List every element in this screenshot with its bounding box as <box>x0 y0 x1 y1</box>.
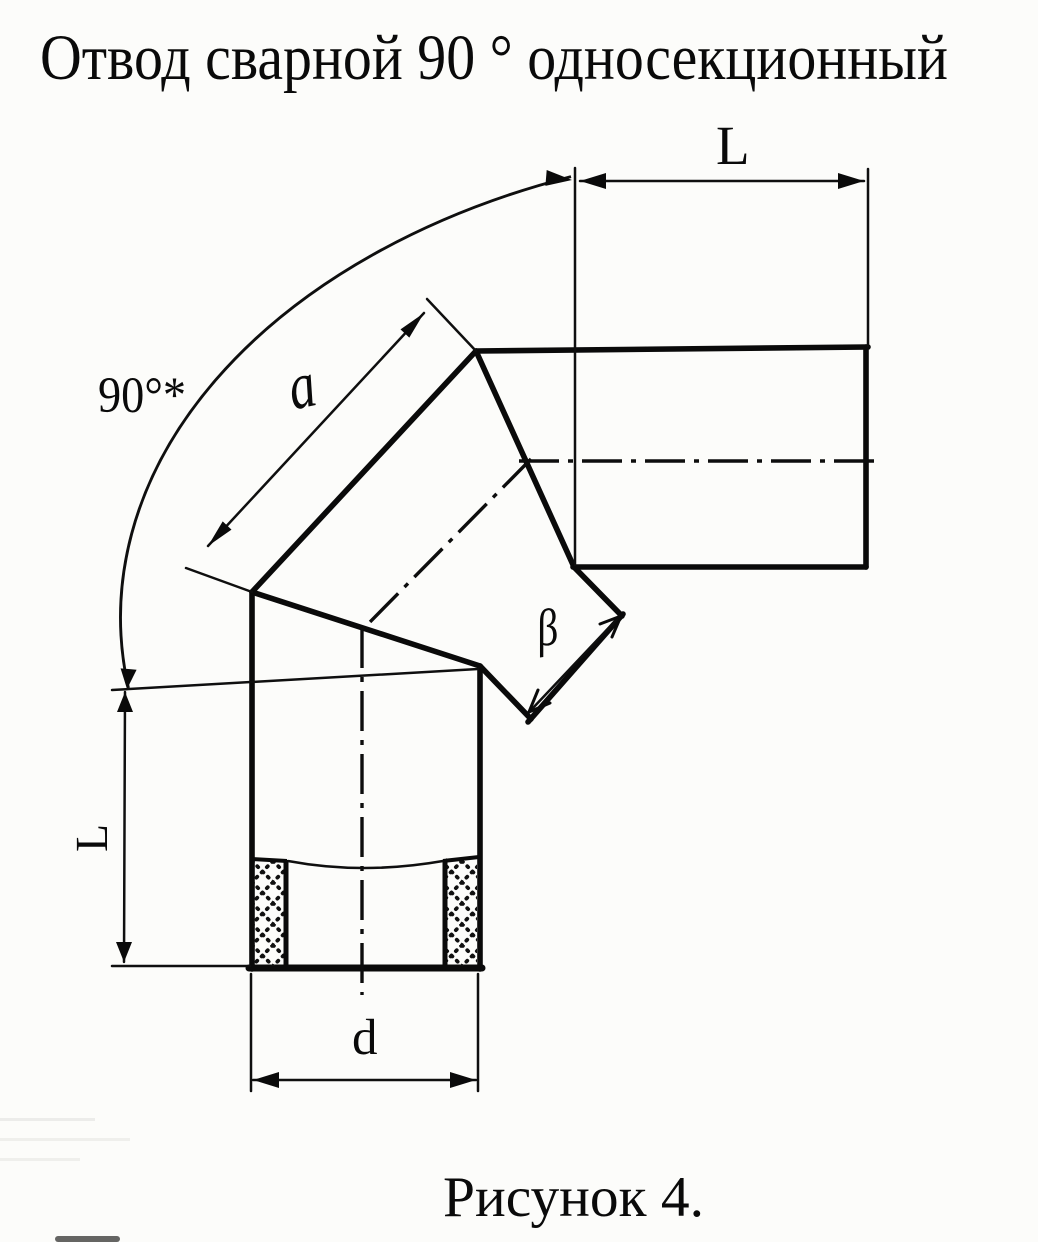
svg-text:Отвод сварной 90 ° односекцион: Отвод сварной 90 ° односекционный <box>40 22 948 94</box>
svg-text:L: L <box>716 115 750 176</box>
svg-text:90°*: 90°* <box>98 368 186 424</box>
svg-text:d: d <box>352 1010 378 1066</box>
svg-text:Рисунок 4.: Рисунок 4. <box>443 1166 704 1229</box>
